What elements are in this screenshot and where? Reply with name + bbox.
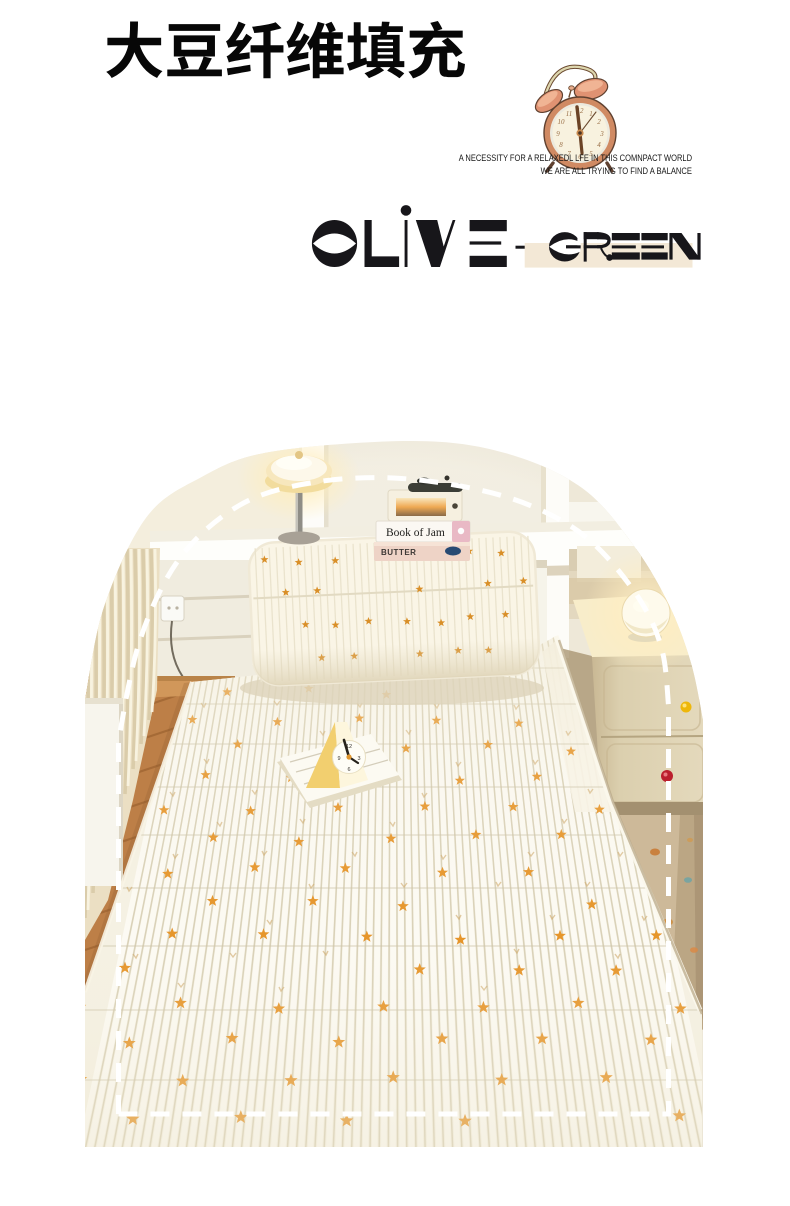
svg-text:4: 4 bbox=[597, 141, 601, 149]
svg-text:2: 2 bbox=[597, 118, 601, 126]
svg-text:3: 3 bbox=[357, 756, 360, 762]
svg-text:BUTTER: BUTTER bbox=[381, 548, 416, 557]
svg-text:Book of Jam: Book of Jam bbox=[386, 527, 445, 539]
svg-text:9: 9 bbox=[337, 756, 340, 762]
svg-text:A NECESSITY FOR A RELAXEDL LFE: A NECESSITY FOR A RELAXEDL LFE IN THIS C… bbox=[459, 152, 692, 163]
svg-text:6: 6 bbox=[347, 767, 350, 773]
svg-text:8: 8 bbox=[559, 141, 563, 149]
svg-text:11: 11 bbox=[566, 110, 572, 118]
svg-text:3: 3 bbox=[599, 130, 604, 138]
svg-text:WE ARE ALL TRYING TO FIND A BA: WE ARE ALL TRYING TO FIND A BALANCE bbox=[541, 165, 693, 176]
svg-text:9: 9 bbox=[556, 130, 560, 138]
svg-text:10: 10 bbox=[558, 118, 566, 126]
